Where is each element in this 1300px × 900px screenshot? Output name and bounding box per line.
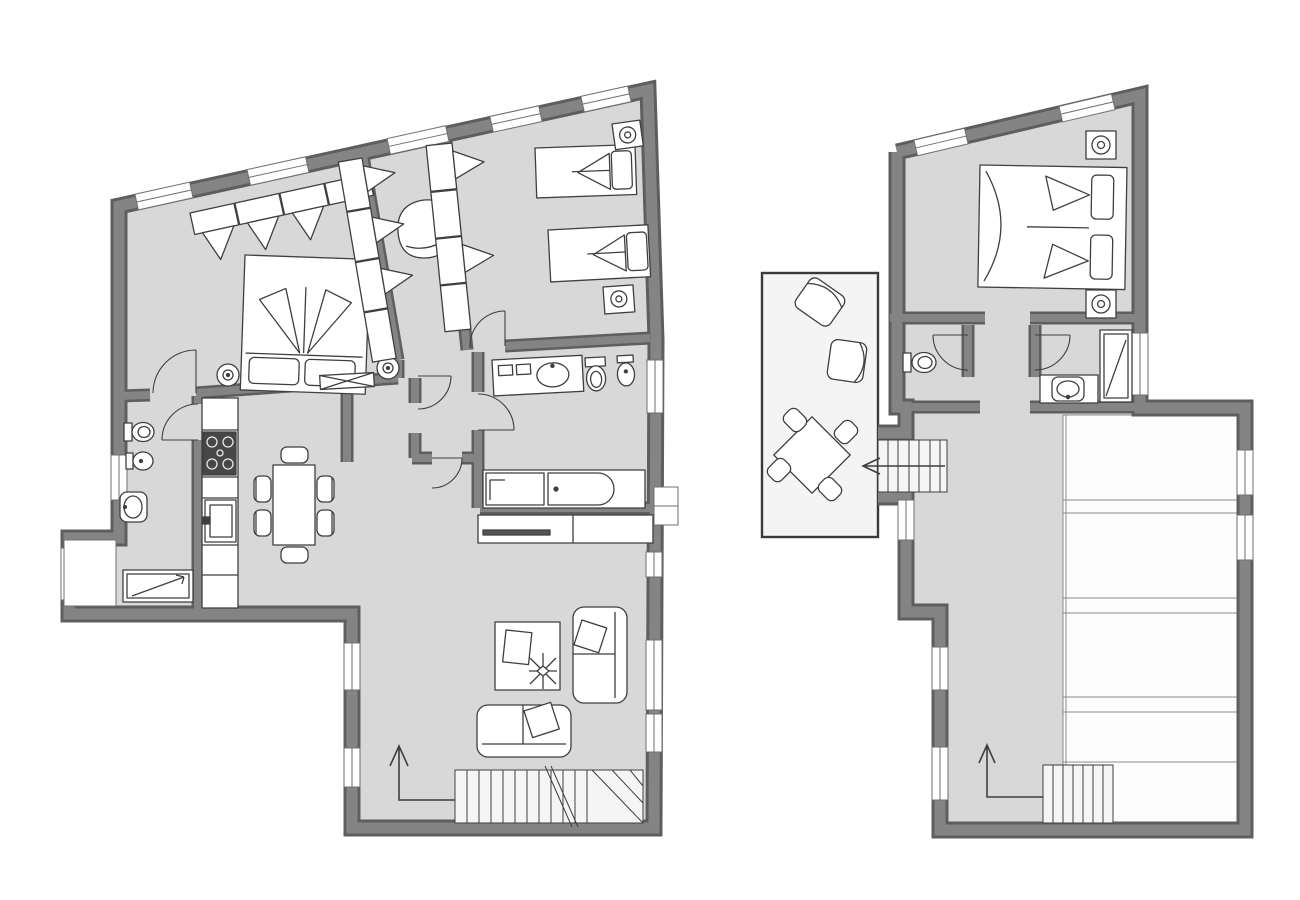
coffee-table	[495, 622, 560, 690]
window	[932, 747, 948, 800]
window	[647, 360, 663, 413]
tv-cabinet	[478, 515, 653, 543]
window	[344, 748, 360, 787]
toilet	[585, 357, 607, 392]
window	[646, 552, 662, 577]
window	[344, 643, 360, 690]
double-bed	[978, 165, 1127, 290]
nightstand-lamp	[1086, 131, 1116, 159]
tv-strip	[483, 530, 550, 535]
nightstand-lamp	[217, 364, 239, 386]
sofa-right	[573, 607, 627, 703]
washbasin	[120, 492, 147, 522]
window	[1237, 450, 1253, 495]
decor-book	[503, 630, 532, 665]
shower-tray	[123, 570, 193, 602]
window	[932, 647, 948, 690]
window-bay	[654, 487, 678, 525]
toilet	[903, 353, 936, 373]
staircase-upper	[1043, 765, 1113, 823]
roof-area	[1063, 415, 1238, 826]
staircase-ground	[455, 766, 643, 827]
roof-panel	[1063, 415, 1238, 826]
single-bed	[535, 145, 637, 198]
floor-plan-canvas	[0, 0, 1300, 900]
window	[1237, 515, 1253, 560]
window	[646, 640, 662, 710]
bidet	[616, 355, 635, 386]
nightstand-lamp	[603, 285, 635, 314]
single-bed	[548, 225, 651, 282]
kitchen-sink	[203, 500, 236, 542]
window	[898, 500, 914, 540]
dining-table	[273, 465, 315, 545]
nightstand-lamp	[612, 120, 643, 150]
vanity-sink	[492, 355, 584, 396]
toilet	[124, 423, 154, 442]
bidet	[126, 452, 153, 470]
hob	[203, 432, 236, 475]
bathtub	[483, 470, 645, 508]
sofa-bottom	[477, 702, 571, 757]
shower	[1100, 330, 1132, 402]
radiator	[320, 373, 375, 390]
washbasin	[1052, 377, 1084, 401]
bay-window-sill	[64, 540, 116, 606]
window	[646, 714, 662, 752]
nightstand-lamp	[1086, 290, 1116, 318]
terrace-armchair	[826, 339, 867, 384]
window	[1132, 333, 1148, 395]
